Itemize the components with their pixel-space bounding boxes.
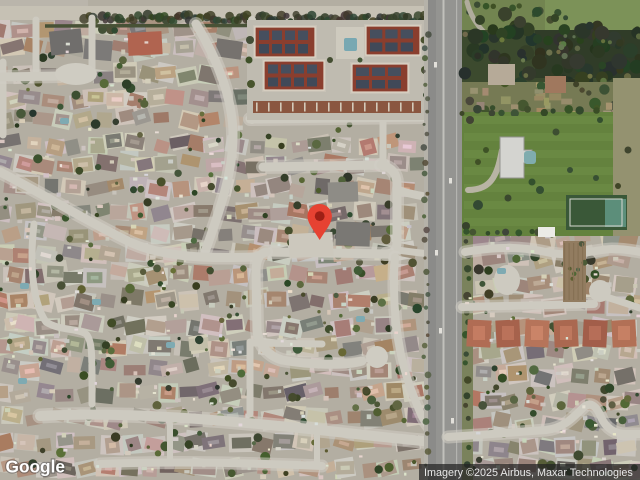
svg-text:Google: Google — [6, 457, 66, 477]
svg-text:Imagery ©2025 Airbus, Maxar Te: Imagery ©2025 Airbus, Maxar Technologies — [424, 467, 633, 479]
